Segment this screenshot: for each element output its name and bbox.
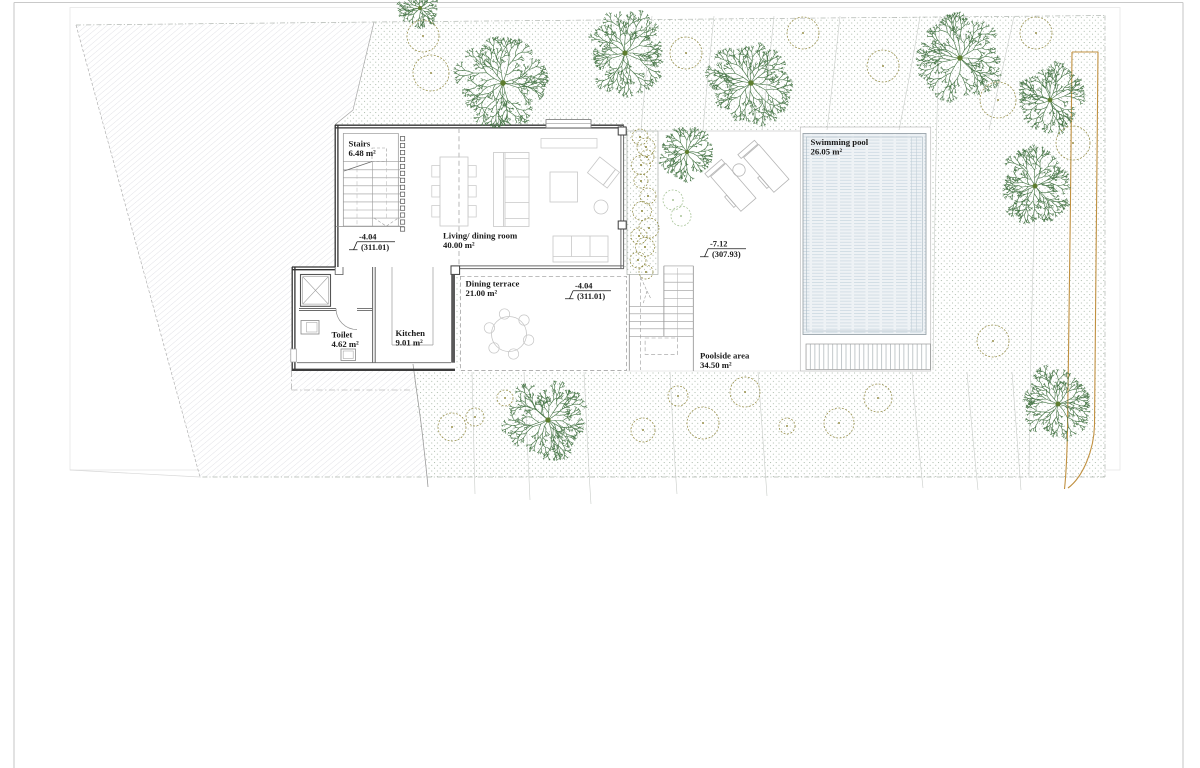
svg-text:Dining terrace: Dining terrace — [466, 279, 520, 289]
svg-text:Stairs: Stairs — [349, 139, 371, 149]
svg-text:26.05 m²: 26.05 m² — [811, 147, 843, 157]
svg-text:-4.04: -4.04 — [359, 233, 377, 242]
svg-text:-7.12: -7.12 — [710, 240, 727, 249]
svg-text:21.00 m²: 21.00 m² — [466, 288, 498, 298]
svg-text:-4.04: -4.04 — [575, 282, 593, 291]
svg-text:(307.93): (307.93) — [712, 250, 741, 259]
svg-text:Toilet: Toilet — [332, 330, 353, 340]
svg-text:Poolside area: Poolside area — [700, 351, 750, 361]
svg-text:(311.01): (311.01) — [361, 243, 389, 252]
svg-text:Kitchen: Kitchen — [396, 328, 426, 338]
svg-text:Swimming pool: Swimming pool — [811, 137, 869, 147]
svg-text:9.01 m²: 9.01 m² — [396, 338, 424, 348]
svg-text:40.00 m²: 40.00 m² — [443, 240, 475, 250]
svg-text:6.48 m²: 6.48 m² — [349, 148, 377, 158]
svg-text:Living/ dining room: Living/ dining room — [443, 231, 518, 241]
svg-text:34.50 m²: 34.50 m² — [700, 360, 732, 370]
svg-text:(311.01): (311.01) — [577, 292, 605, 301]
svg-text:4.62 m²: 4.62 m² — [332, 339, 360, 349]
